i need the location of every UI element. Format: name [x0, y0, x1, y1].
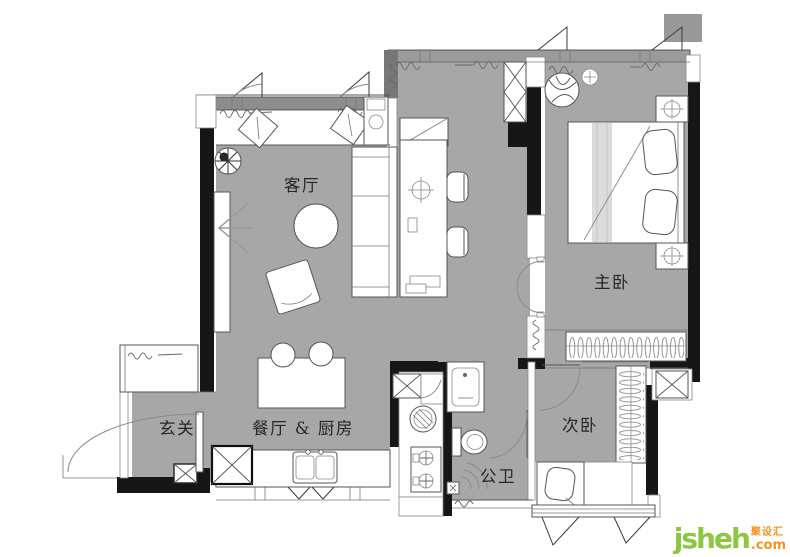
sofa: [352, 147, 397, 297]
bathroom-label: 公卫: [480, 467, 516, 486]
duct-block: [664, 14, 702, 42]
watermark-brand-text: jsheh: [674, 525, 749, 553]
side-table: [584, 462, 632, 510]
coffee-table: [294, 204, 338, 248]
master-closet: [566, 332, 686, 361]
toilet: [452, 428, 487, 456]
shoe-cabinet-x: [174, 464, 197, 483]
watermark-logo: jsheh 聚设汇 .com: [674, 525, 786, 553]
double-sink: [293, 450, 337, 483]
nightstand: [656, 243, 688, 269]
nightstand: [656, 96, 688, 122]
second-bedroom-floor: [535, 368, 618, 462]
balcony-cabinet: [364, 97, 388, 145]
gas-stove: [411, 447, 441, 492]
dining-kitchen-label: 餐厅 & 厨房: [252, 419, 354, 438]
pillow: [642, 188, 678, 235]
bay-window-entrance: [120, 345, 198, 392]
stool: [271, 343, 295, 367]
watermark-tld-text: .com: [751, 539, 786, 552]
second-wardrobe: [616, 366, 646, 463]
floor-plan-drawing: 客厅 主卧 次卧 玄关 餐厅 & 厨房 公卫: [0, 0, 790, 557]
window-flap-icon: [614, 517, 650, 543]
desk-chair: [447, 227, 468, 257]
vanity-sink: [447, 362, 484, 412]
entrance-label: 玄关: [159, 419, 195, 438]
tv-cabinet: [214, 192, 230, 332]
living-room-label: 客厅: [284, 176, 320, 195]
appliance-column: [393, 372, 443, 516]
desk-chair: [447, 172, 468, 202]
watermark-cjk-text: 聚设汇: [751, 528, 786, 538]
second-bedroom-label: 次卧: [562, 416, 598, 435]
cabinet-x: [212, 446, 252, 484]
master-bedroom-label: 主卧: [594, 273, 630, 292]
ac-shaft: [652, 369, 692, 400]
pillow: [642, 128, 678, 175]
floor-plan-page: 客厅 主卧 次卧 玄关 餐厅 & 厨房 公卫 jsheh 聚设汇 .com: [0, 0, 790, 557]
window-flap-icon: [542, 517, 579, 545]
washing-machine: [410, 406, 436, 432]
pillow: [544, 466, 576, 502]
window-flap-icon: [538, 27, 567, 50]
desk: [400, 140, 447, 297]
balcony-window-track: [200, 97, 390, 110]
double-bed: [568, 122, 684, 243]
study-wardrobe: [504, 62, 526, 122]
bay-window: [532, 505, 655, 545]
plant-icon: [215, 148, 241, 174]
bifold-door-icon: [288, 487, 334, 499]
stool: [309, 342, 333, 366]
fridge: [393, 374, 421, 398]
